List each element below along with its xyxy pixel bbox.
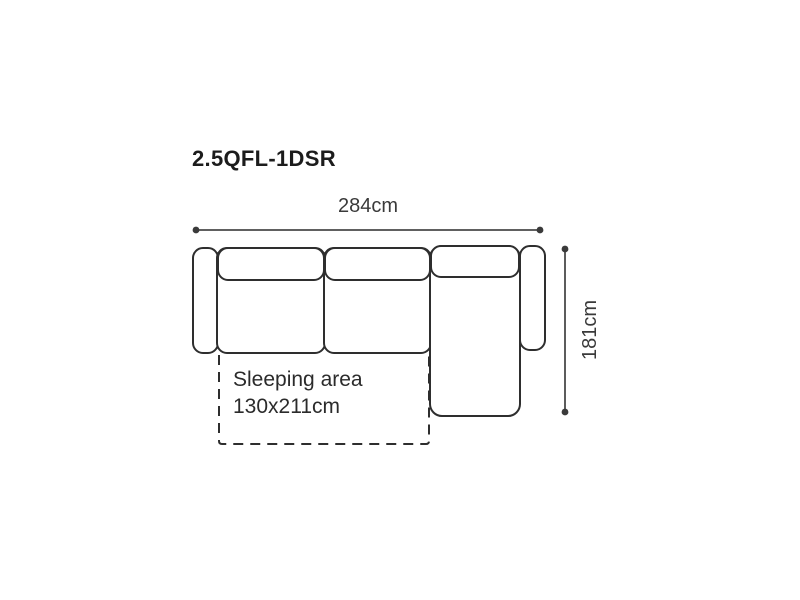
sleeping-area-label: Sleeping area xyxy=(233,368,363,391)
height-dimension-top-dot xyxy=(562,246,569,253)
right-armrest-shape xyxy=(520,246,545,350)
sleeping-area-annotation: Sleeping area 130x211cm xyxy=(233,368,363,418)
chaise-back-cushion-shape xyxy=(431,246,519,277)
sofa-dimension-diagram: 2.5QFL-1DSR 284cm xyxy=(0,0,800,600)
back-cushion-1-shape xyxy=(218,248,324,280)
left-armrest-shape xyxy=(193,248,218,353)
diagram-svg: 2.5QFL-1DSR 284cm xyxy=(0,0,800,600)
sleeping-area-size-label: 130x211cm xyxy=(233,395,340,418)
width-dimension-label: 284cm xyxy=(338,195,398,217)
height-dimension-label: 181cm xyxy=(579,300,601,360)
width-dimension: 284cm xyxy=(193,195,544,233)
width-dimension-left-dot xyxy=(193,227,200,234)
back-cushion-2-shape xyxy=(325,248,430,280)
height-dimension-bottom-dot xyxy=(562,409,569,416)
height-dimension: 181cm xyxy=(562,246,601,416)
product-code-label: 2.5QFL-1DSR xyxy=(192,146,336,171)
width-dimension-right-dot xyxy=(537,227,544,234)
